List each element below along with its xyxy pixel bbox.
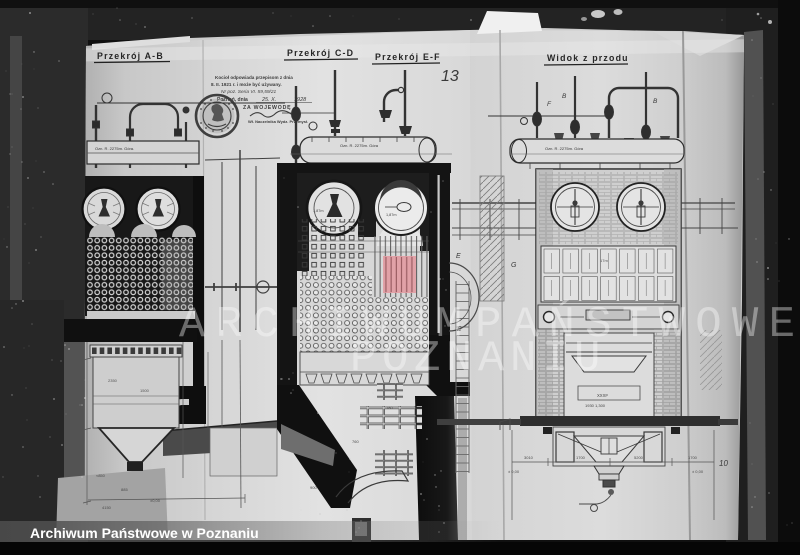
svg-text:25. X.: 25. X. <box>261 97 276 103</box>
svg-text:8. II. 1921 r. i może być używ: 8. II. 1921 r. i może być używany. <box>211 82 282 87</box>
svg-text:E: E <box>456 253 461 260</box>
svg-text:Kocioł odpowiada przepisom z d: Kocioł odpowiada przepisom z dnia <box>215 75 293 80</box>
svg-text:± 0,00: ± 0,00 <box>508 469 520 474</box>
svg-text:Ozn. R. 2275m. Góra.: Ozn. R. 2275m. Góra. <box>95 146 134 151</box>
svg-text:Ozn. R. 2275m. Góra: Ozn. R. 2275m. Góra <box>545 146 584 151</box>
svg-text:10: 10 <box>719 459 728 468</box>
svg-text:885: 885 <box>121 487 128 492</box>
svg-text:1,87m: 1,87m <box>386 213 397 217</box>
svg-text:1700: 1700 <box>688 455 698 460</box>
svg-text:17m: 17m <box>600 258 608 263</box>
svg-text:4150: 4150 <box>102 505 112 510</box>
svg-text:1500: 1500 <box>140 388 150 393</box>
svg-text:2350: 2350 <box>108 378 118 383</box>
svg-text:B: B <box>562 93 567 100</box>
svg-text:POZNANIU: POZNANIU <box>350 334 606 384</box>
svg-text:5200: 5200 <box>634 455 644 460</box>
svg-text:3010: 3010 <box>524 455 534 460</box>
svg-text:Archiwum Państwowe w Poznaniu: Archiwum Państwowe w Poznaniu <box>30 525 259 541</box>
svg-text:180: 180 <box>386 405 393 410</box>
svg-text:± 0,00: ± 0,00 <box>692 469 704 474</box>
svg-text:B: B <box>653 98 658 105</box>
svg-text:Przekrój C-D: Przekrój C-D <box>287 48 354 58</box>
svg-text:1930 1,300: 1930 1,300 <box>585 403 606 408</box>
svg-text:G: G <box>511 262 517 269</box>
svg-text:900: 900 <box>310 485 317 490</box>
svg-text:≈850: ≈850 <box>96 473 106 478</box>
svg-text:XXXIº: XXXIº <box>597 393 609 398</box>
svg-text:Ozn. R. 2275m. Góra: Ozn. R. 2275m. Góra <box>340 143 379 148</box>
svg-text:760: 760 <box>352 439 359 444</box>
svg-text:Nr poz. Seria VI. 59,59/21: Nr poz. Seria VI. 59,59/21 <box>221 89 277 95</box>
svg-text:13: 13 <box>441 68 459 85</box>
svg-text:±0,00: ±0,00 <box>150 498 161 503</box>
svg-text:Przekrój E-F: Przekrój E-F <box>375 52 441 62</box>
svg-text:ZA WOJEWODĘ: ZA WOJEWODĘ <box>243 105 291 111</box>
svg-text:1,87m: 1,87m <box>313 209 324 213</box>
svg-text:Przekrój A-B: Przekrój A-B <box>97 51 164 61</box>
svg-text:Widok z przodu: Widok z przodu <box>547 53 629 63</box>
svg-text:1700: 1700 <box>576 455 586 460</box>
